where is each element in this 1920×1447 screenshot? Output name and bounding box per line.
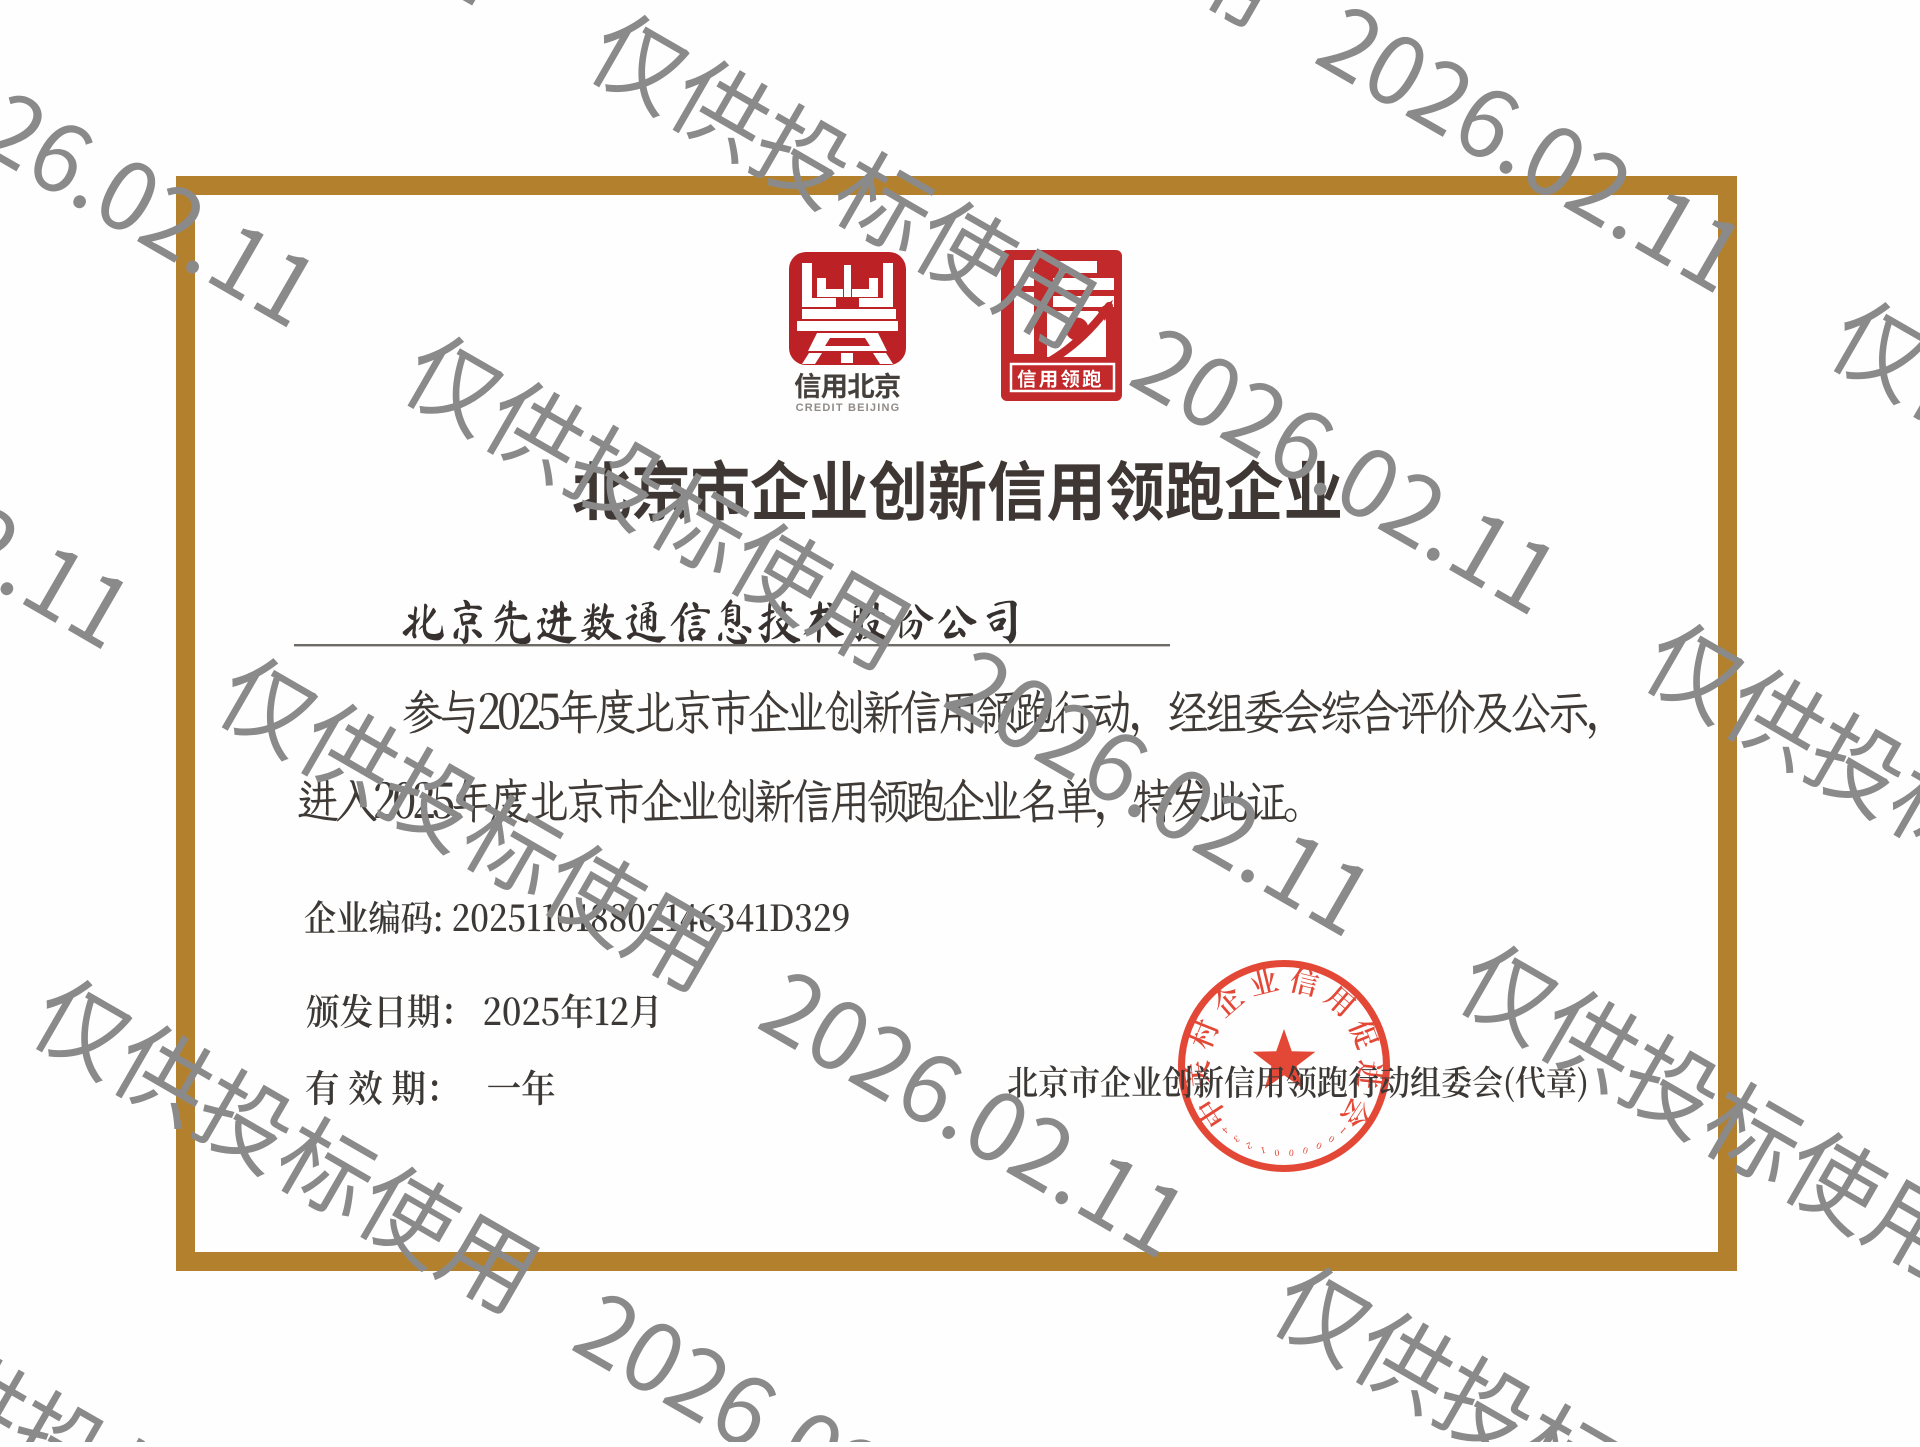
svg-text:CREDIT BEIJING: CREDIT BEIJING xyxy=(796,402,901,414)
